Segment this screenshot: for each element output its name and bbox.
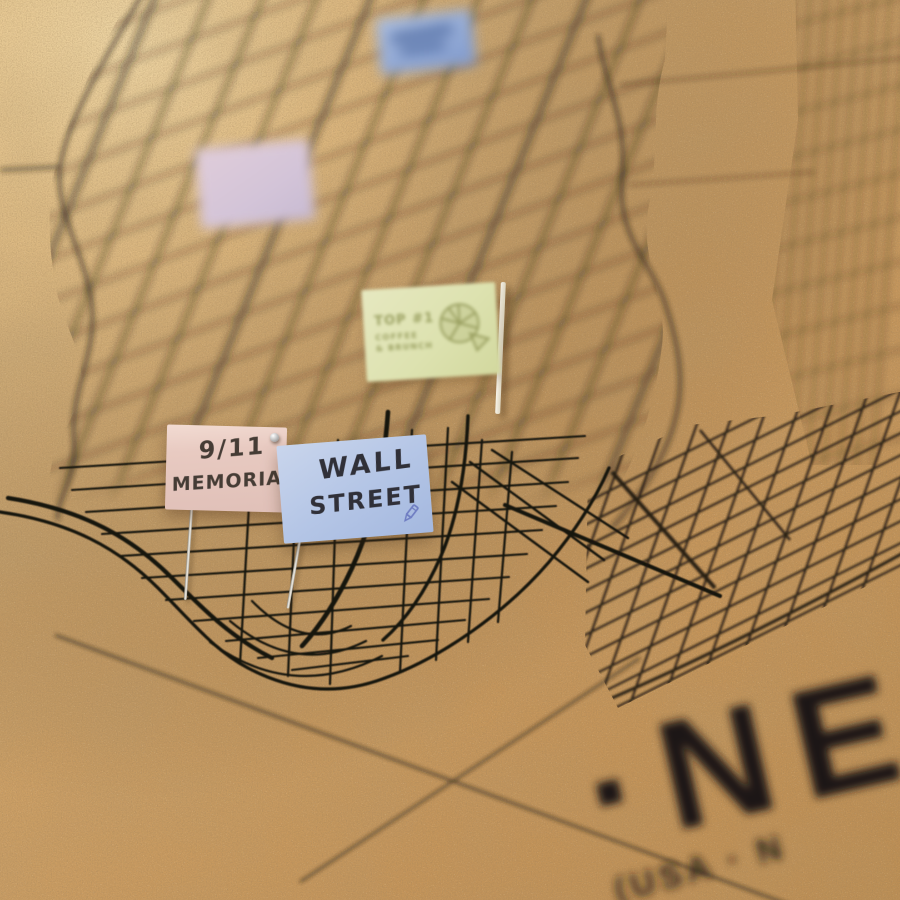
cork-map-photo: ·NE (USA · N TOP #1 COFFEE & BRUNCH	[0, 0, 900, 900]
flag-line: MEMORIAL	[172, 466, 295, 496]
flag-printed-text: TOP #1 COFFEE & BRUNCH	[374, 311, 436, 354]
flag-line: TOP #1	[374, 311, 435, 330]
handwriting-scribble	[390, 23, 454, 42]
silver-pin-head	[270, 433, 279, 442]
flag-line: WALL	[318, 443, 414, 487]
flag-911-memorial: 9/11 MEMORIAL	[165, 424, 287, 512]
flag-blurred-pink	[195, 139, 316, 229]
flag-wall-street: WALL STREET	[276, 434, 433, 543]
flag-line: & BRUNCH	[376, 341, 436, 354]
pencil-icon	[397, 501, 423, 527]
handwriting-scribble	[399, 41, 446, 55]
pie-slices-icon	[432, 296, 493, 357]
flag-line: 9/11	[199, 431, 266, 464]
new-york-cork-map: ·NE (USA · N	[0, 0, 900, 900]
flag-blurred-blue	[375, 9, 476, 75]
flag-top1-coffee-brunch: TOP #1 COFFEE & BRUNCH	[361, 282, 500, 382]
